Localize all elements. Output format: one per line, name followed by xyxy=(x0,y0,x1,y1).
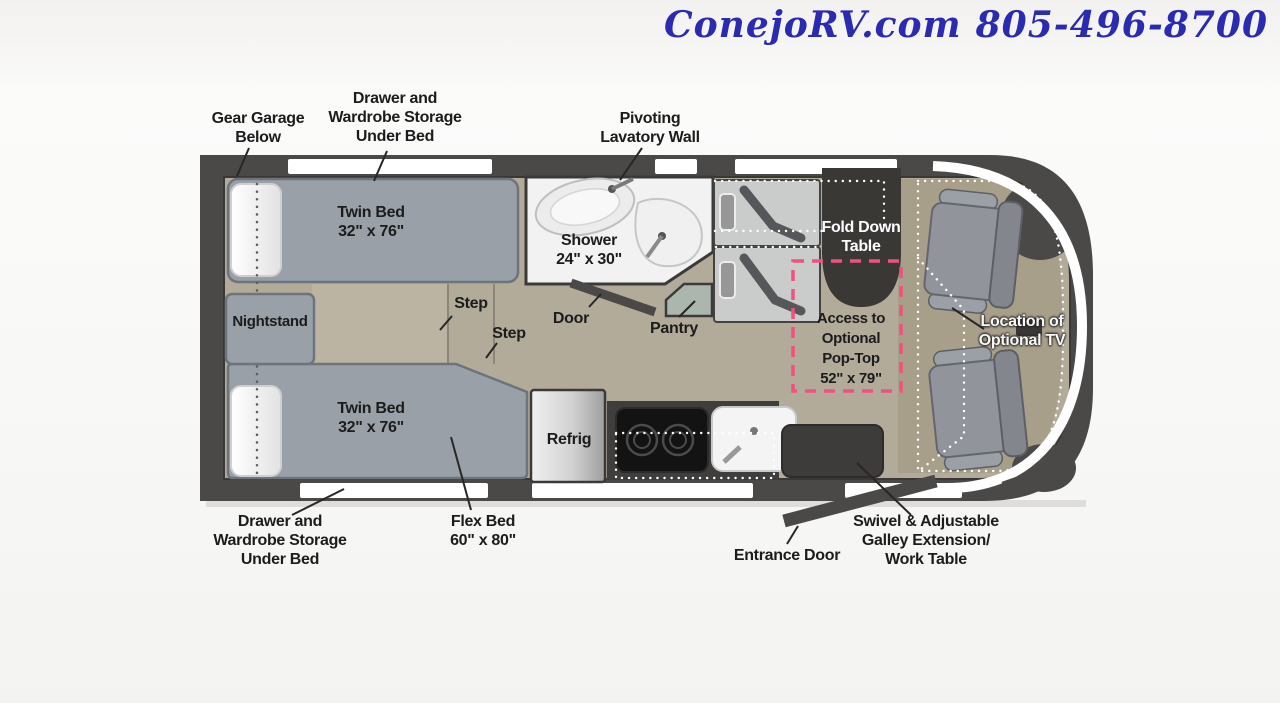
window-bottom-1 xyxy=(300,483,488,498)
label-pop-top-access: Access to Optional Pop-Top 52" x 79" xyxy=(791,309,911,389)
label-twin-bed-bottom: Twin Bed 32" x 76" xyxy=(291,399,451,437)
floorplan-drawing xyxy=(0,0,1280,703)
seatbelt-buckle-top xyxy=(720,194,735,230)
label-twin-bed-top: Twin Bed 32" x 76" xyxy=(291,203,451,241)
passenger-swivel-chair xyxy=(922,188,1024,317)
label-fold-down-table: Fold Down Table xyxy=(801,218,921,256)
label-step-upper: Step xyxy=(431,294,511,313)
label-pivoting-lavatory-wall: Pivoting Lavatory Wall xyxy=(560,109,740,147)
label-drawer-storage-bottom: Drawer and Wardrobe Storage Under Bed xyxy=(190,512,370,569)
label-pantry: Pantry xyxy=(634,319,714,338)
label-refrigerator: Refrig xyxy=(519,430,619,449)
label-galley-work-table: Swivel & Adjustable Galley Extension/ Wo… xyxy=(826,512,1026,569)
seatbelt-buckle-bottom xyxy=(720,262,735,298)
dealer-banner: ConejoRV.com805-496-8700 xyxy=(650,4,1268,46)
bedroom-aisle-floor xyxy=(312,284,448,364)
driver-swivel-chair xyxy=(927,343,1029,472)
label-optional-tv: Location of Optional TV xyxy=(952,312,1092,350)
window-top-1 xyxy=(288,159,492,174)
rv-floorplan-page: ConejoRV.com805-496-8700 xyxy=(0,0,1280,703)
label-flex-bed: Flex Bed 60" x 80" xyxy=(403,512,563,550)
window-bottom-2 xyxy=(532,483,753,498)
coach-shadow xyxy=(206,500,1086,507)
dealer-website: ConejoRV.com xyxy=(664,4,962,46)
label-shower: Shower 24" x 30" xyxy=(529,231,649,269)
label-drawer-storage-top: Drawer and Wardrobe Storage Under Bed xyxy=(305,89,485,146)
label-nightstand: Nightstand xyxy=(210,312,330,331)
galley-extension-table xyxy=(782,425,883,477)
pillow-bottom xyxy=(231,386,281,476)
dealer-phone: 805-496-8700 xyxy=(976,4,1268,46)
label-door: Door xyxy=(531,309,611,328)
window-top-2 xyxy=(655,159,697,174)
